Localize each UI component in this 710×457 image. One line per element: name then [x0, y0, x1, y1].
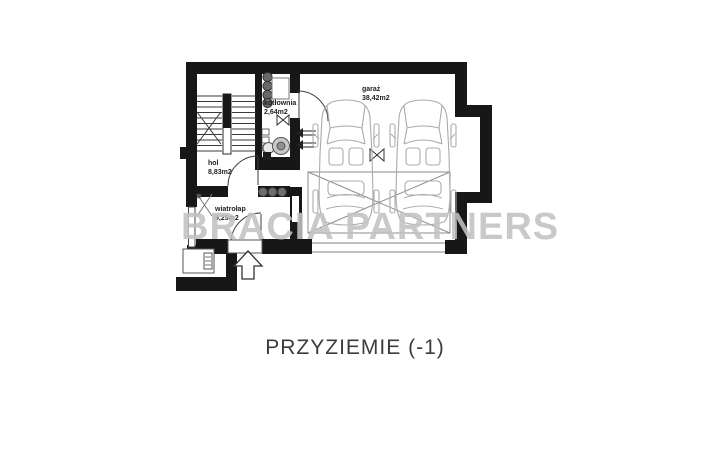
room-label-hol: hol 8,83m2: [208, 159, 232, 178]
floor-title: PRZYZIEMIE (-1): [0, 336, 710, 360]
staircase: [197, 94, 256, 154]
door-garage-kotlownia: [298, 91, 328, 121]
agency-watermark: BRACIA PARTNERS: [181, 206, 559, 249]
wall-columns: [259, 188, 287, 197]
room-name: kotłownia: [264, 99, 296, 108]
room-name: garaż: [362, 85, 390, 94]
pump-icon: [262, 129, 290, 160]
room-area: 8,83m2: [208, 168, 232, 177]
door-hol: [228, 156, 258, 186]
meter-box: [183, 249, 214, 273]
room-label-garaz: garaż 38,42m2: [362, 85, 390, 104]
room-area: 38,42m2: [362, 94, 390, 103]
floor-plan-canvas: kotłownia 2,64m2 garaż 38,42m2 hol 8,83m…: [0, 0, 710, 457]
room-label-kotlownia: kotłownia 2,64m2: [264, 99, 296, 118]
room-name: hol: [208, 159, 232, 168]
room-area: 2,64m2: [264, 108, 296, 117]
entrance-arrow-icon: [234, 251, 262, 279]
